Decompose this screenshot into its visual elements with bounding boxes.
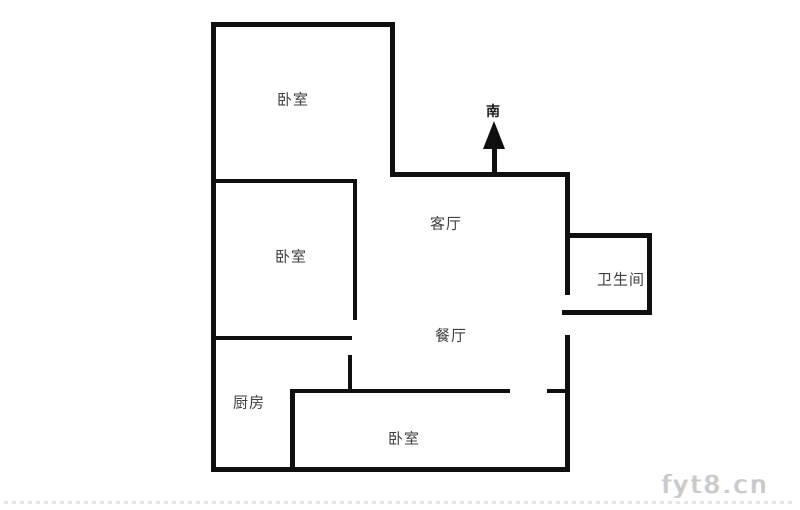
wall-outer-right-lower: [565, 335, 570, 472]
wall-bedroom-middle-top: [211, 179, 357, 183]
room-label-kitchen: 厨房: [233, 396, 265, 411]
wall-outer-left: [211, 22, 216, 472]
wall-kitchen-divider: [348, 355, 352, 391]
room-label-bathroom: 卫生间: [597, 273, 645, 288]
room-label-living-room: 客厅: [430, 217, 462, 232]
wall-bathroom-top: [565, 233, 652, 238]
wall-bedroom-top-right: [390, 22, 395, 177]
north-arrow-icon: [483, 121, 505, 149]
wall-bathroom-bottom: [562, 310, 652, 315]
wall-bathroom-right: [647, 233, 652, 315]
wall-bedroom-bottom-top-stub: [547, 389, 570, 393]
north-arrow-shaft: [492, 147, 497, 174]
wall-living-room-top: [390, 172, 570, 177]
wall-top-bedroom-top: [211, 22, 395, 27]
compass-south-label: 南: [486, 105, 500, 119]
room-label-bedroom-middle: 卧室: [275, 250, 307, 265]
wall-bedroom-bottom-left: [290, 389, 295, 472]
wall-bedroom-middle-right: [353, 179, 357, 320]
wall-outer-bottom: [211, 467, 570, 472]
wall-bedroom-middle-bottom: [211, 336, 352, 340]
watermark: fyt8.cn: [662, 472, 769, 497]
room-label-dining-room: 餐厅: [435, 329, 467, 344]
room-label-bedroom-top: 卧室: [277, 93, 309, 108]
wall-bedroom-bottom-top: [290, 389, 510, 393]
room-label-bedroom-bottom: 卧室: [388, 432, 420, 447]
floor-plan: 南 卧室 卧室 客厅 卫生间 餐厅 厨房 卧室 fyt8.cn: [0, 0, 800, 510]
scan-edge-artifact: [4, 501, 796, 504]
